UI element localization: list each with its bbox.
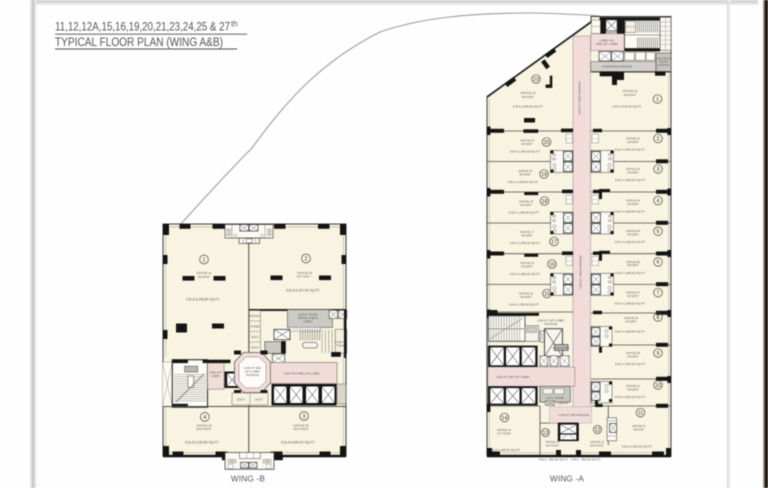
svg-text:S.B.A 1,298.00 SQ.FT.: S.B.A 1,298.00 SQ.FT. bbox=[615, 240, 646, 244]
svg-text:21'7"X33'9": 21'7"X33'9" bbox=[497, 431, 511, 435]
svg-text:1: 1 bbox=[203, 258, 206, 264]
svg-text:S.B.A 1,298.00 SQ.FT.: S.B.A 1,298.00 SQ.FT. bbox=[615, 271, 646, 275]
svg-text:1: 1 bbox=[656, 97, 659, 103]
svg-text:S.B.A 1,298.00 SQ.FT.: S.B.A 1,298.00 SQ.FT. bbox=[509, 303, 540, 307]
svg-text:10: 10 bbox=[655, 383, 661, 389]
svg-text:th: th bbox=[231, 20, 238, 29]
svg-text:S.B.A 1,298.00 SQ.FT.: S.B.A 1,298.00 SQ.FT. bbox=[615, 178, 646, 182]
svg-text:FIRE LIFT: FIRE LIFT bbox=[209, 371, 222, 375]
svg-text:LOW HT. OPEN PASSAGE: LOW HT. OPEN PASSAGE bbox=[578, 81, 582, 115]
svg-text:11: 11 bbox=[638, 410, 643, 416]
svg-text:DUCT: DUCT bbox=[251, 346, 259, 350]
svg-text:WING -B: WING -B bbox=[231, 475, 265, 484]
svg-text:40'X33'9": 40'X33'9" bbox=[198, 275, 211, 279]
svg-text:SMOKE CHECK: SMOKE CHECK bbox=[298, 316, 318, 320]
svg-text:40'X18'6": 40'X18'6" bbox=[627, 263, 639, 267]
svg-text:S.B.A 1,250.00 SQ.FT.: S.B.A 1,250.00 SQ.FT. bbox=[510, 150, 541, 154]
svg-text:40'X18'6": 40'X18'6" bbox=[627, 294, 639, 298]
svg-text:33'9"X40'9": 33'9"X40'9" bbox=[293, 427, 308, 431]
svg-text:S.B.A 5,069.00 SQ.FT.: S.B.A 5,069.00 SQ.FT. bbox=[281, 440, 315, 444]
svg-text:A.H.U. ROOM: A.H.U. ROOM bbox=[546, 396, 564, 400]
svg-text:12: 12 bbox=[595, 427, 601, 433]
svg-text:9: 9 bbox=[657, 351, 660, 357]
svg-text:TYPICAL FLOOR PLAN (WING A&B): TYPICAL FLOOR PLAN (WING A&B) bbox=[55, 35, 223, 49]
svg-text:MAID ROOM: MAID ROOM bbox=[553, 346, 570, 350]
svg-text:S.B.A 1,250.00 SQ.FT.: S.B.A 1,250.00 SQ.FT. bbox=[615, 395, 646, 399]
svg-text:40'X18'6": 40'X18'6" bbox=[520, 203, 532, 207]
svg-text:(19'X5'9"): (19'X5'9") bbox=[658, 63, 670, 67]
svg-text:S.B.A 1,250.00 SQ.FT.: S.B.A 1,250.00 SQ.FT. bbox=[615, 148, 646, 152]
svg-text:LOW HT.: LOW HT. bbox=[557, 402, 568, 406]
svg-text:PASSAGE: PASSAGE bbox=[246, 373, 259, 377]
svg-text:6: 6 bbox=[657, 260, 660, 266]
svg-text:FIRE LIFT LOBBY: FIRE LIFT LOBBY bbox=[596, 42, 619, 46]
svg-text:S.B.A 1,298.00 SQ.FT.: S.B.A 1,298.00 SQ.FT. bbox=[509, 211, 540, 215]
svg-text:40'X18'6": 40'X18'6" bbox=[627, 140, 639, 144]
svg-text:S.B.A 3473.00 SQ.FT.: S.B.A 3473.00 SQ.FT. bbox=[612, 105, 642, 109]
svg-text:LOW HT. OPEN PASSAGE: LOW HT. OPEN PASSAGE bbox=[579, 255, 583, 289]
svg-text:40'X103": 40'X103" bbox=[633, 427, 644, 431]
svg-text:S.B.A 2,262.00 SQ.FT.: S.B.A 2,262.00 SQ.FT. bbox=[622, 444, 653, 448]
svg-text:DUCT: DUCT bbox=[255, 398, 263, 402]
svg-text:S.B.A 1,298.00 SQ.FT.: S.B.A 1,298.00 SQ.FT. bbox=[508, 180, 539, 184]
svg-text:40'X18'6": 40'X18'6" bbox=[519, 172, 531, 176]
svg-text:20'4"X24'1": 20'4"X24'1" bbox=[590, 443, 604, 447]
svg-text:40'X18'6": 40'X18'6" bbox=[627, 233, 639, 237]
svg-text:LIFT LOBBY: LIFT LOBBY bbox=[245, 370, 261, 374]
svg-text:S.B.A - 959.00 SQ.FT.: S.B.A - 959.00 SQ.FT. bbox=[571, 458, 601, 462]
svg-text:2: 2 bbox=[305, 257, 308, 263]
svg-text:S.B.A 1,298.00 SQ.FT.: S.B.A 1,298.00 SQ.FT. bbox=[510, 272, 541, 276]
svg-text:40'X18'6": 40'X18'6" bbox=[627, 354, 639, 358]
svg-text:S.B.A 1,298.00 SQ.FT.: S.B.A 1,298.00 SQ.FT. bbox=[510, 241, 541, 245]
svg-text:DUCT: DUCT bbox=[251, 335, 259, 339]
svg-text:S.B.A 5,205.80 SQ.FT.: S.B.A 5,205.80 SQ.FT. bbox=[186, 298, 220, 302]
svg-text:LOBBY: LOBBY bbox=[211, 374, 220, 378]
svg-text:17: 17 bbox=[551, 239, 557, 245]
svg-text:LOBBY NO.: LOBBY NO. bbox=[600, 39, 615, 43]
svg-text:3: 3 bbox=[303, 414, 306, 420]
svg-text:40'7"X40'--": 40'7"X40'--" bbox=[297, 275, 313, 279]
svg-text:15: 15 bbox=[544, 291, 550, 297]
svg-text:40'X18'6": 40'X18'6" bbox=[627, 387, 639, 391]
svg-text:19: 19 bbox=[541, 172, 547, 178]
svg-text:40'X33'0": 40'X33'0" bbox=[522, 95, 535, 99]
svg-text:11,12,12A,15,16,19,20,21,23,24: 11,12,12A,15,16,19,20,21,23,24,25 & 27 bbox=[55, 19, 230, 33]
svg-text:20: 20 bbox=[544, 140, 550, 146]
svg-text:40'X18'6": 40'X18'6" bbox=[627, 170, 639, 174]
svg-text:16: 16 bbox=[549, 262, 555, 268]
svg-text:20'4"X24'1": 20'4"X24'1" bbox=[545, 443, 559, 447]
svg-text:S.B.A 2,089.00 SQ.FT.: S.B.A 2,089.00 SQ.FT. bbox=[513, 105, 543, 109]
svg-text:14: 14 bbox=[502, 415, 508, 421]
svg-text:4: 4 bbox=[657, 198, 660, 204]
svg-text:40'X18'6": 40'X18'6" bbox=[521, 142, 533, 146]
svg-text:S.B.A 1,250.00 SQ.FT.: S.B.A 1,250.00 SQ.FT. bbox=[615, 362, 646, 366]
svg-text:CONDENSER PARKING: CONDENSER PARKING bbox=[602, 65, 633, 69]
svg-text:LOW HT. MID LIFT LOBBY: LOW HT. MID LIFT LOBBY bbox=[496, 375, 529, 379]
svg-text:LOBBY: LOBBY bbox=[303, 320, 312, 324]
svg-text:5: 5 bbox=[657, 229, 660, 235]
svg-text:40'9"X33'9": 40'9"X33'9" bbox=[196, 427, 211, 431]
svg-text:LOW HT. MID: LOW HT. MID bbox=[244, 366, 261, 370]
svg-text:4: 4 bbox=[203, 415, 206, 421]
svg-text:7: 7 bbox=[657, 290, 660, 296]
svg-text:S.B.A 5,237.00 SQ.FT.: S.B.A 5,237.00 SQ.FT. bbox=[286, 289, 320, 293]
svg-text:40'X18'6": 40'X18'6" bbox=[521, 264, 533, 268]
svg-text:DUCT: DUCT bbox=[237, 398, 245, 402]
svg-text:S.B.A 1,298.00 SQ.FT.: S.B.A 1,298.00 SQ.FT. bbox=[615, 330, 646, 334]
svg-text:S.B.A 5,130.80 SQ.FT.: S.B.A 5,130.80 SQ.FT. bbox=[185, 440, 219, 444]
svg-text:PASSAGE: PASSAGE bbox=[545, 322, 558, 326]
svg-text:18: 18 bbox=[542, 199, 548, 205]
svg-text:3: 3 bbox=[657, 167, 660, 173]
svg-text:ELECT. ROOM: ELECT. ROOM bbox=[299, 313, 318, 317]
svg-text:PANTRY: PANTRY bbox=[250, 314, 261, 318]
svg-text:S.B.A 1,298.00 SQ.FT.: S.B.A 1,298.00 SQ.FT. bbox=[615, 302, 646, 306]
svg-text:40'X18'6": 40'X18'6" bbox=[521, 233, 533, 237]
svg-text:S.B.A 1,298.00 SQ.FT.: S.B.A 1,298.00 SQ.FT. bbox=[615, 210, 646, 214]
svg-text:40'X18'6": 40'X18'6" bbox=[520, 295, 532, 299]
svg-text:STORE: STORE bbox=[250, 325, 260, 329]
svg-text:8: 8 bbox=[657, 315, 660, 321]
svg-text:S.B.A 1,485.00 SQ.FT.: S.B.A 1,485.00 SQ.FT. bbox=[490, 448, 521, 452]
svg-text:2: 2 bbox=[657, 136, 660, 142]
svg-text:13: 13 bbox=[543, 430, 549, 436]
svg-text:40'X74'6": 40'X74'6" bbox=[624, 93, 637, 97]
svg-text:S.B.A - 959.00 SQ.FT.: S.B.A - 959.00 SQ.FT. bbox=[539, 458, 569, 462]
svg-text:40'X18'6": 40'X18'6" bbox=[625, 319, 637, 323]
svg-text:40'X18'6": 40'X18'6" bbox=[627, 202, 639, 206]
svg-text:23: 23 bbox=[533, 77, 539, 83]
svg-text:LOW HT'S FIRE LIFT LOBBY: LOW HT'S FIRE LIFT LOBBY bbox=[284, 372, 321, 376]
svg-text:WING -A: WING -A bbox=[550, 475, 584, 484]
svg-text:LOW HT. MID PASSAGE: LOW HT. MID PASSAGE bbox=[559, 413, 590, 417]
